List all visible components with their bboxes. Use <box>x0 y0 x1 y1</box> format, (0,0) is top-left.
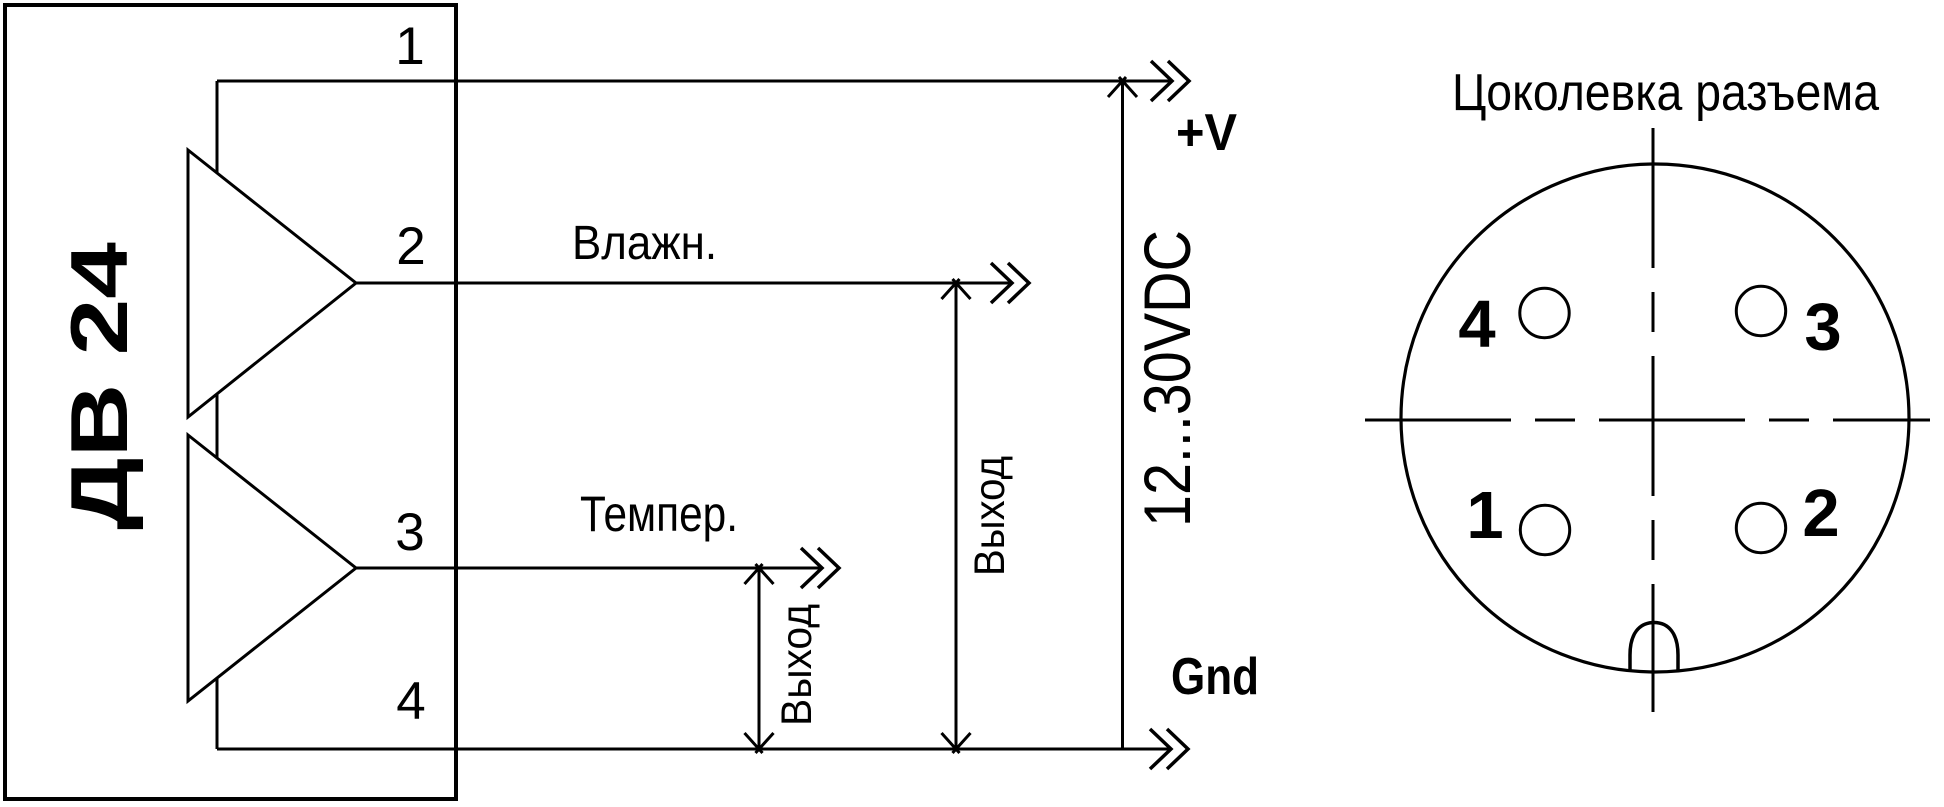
svg-text:Цоколевка разъема: Цоколевка разъема <box>1452 64 1879 122</box>
svg-text:3: 3 <box>395 503 424 562</box>
svg-text:12...30VDC: 12...30VDC <box>1130 230 1204 527</box>
svg-text:Влажн.: Влажн. <box>572 217 717 270</box>
svg-text:1: 1 <box>395 17 424 76</box>
svg-text:Gnd: Gnd <box>1171 648 1259 706</box>
svg-text:+V: +V <box>1176 104 1237 162</box>
svg-text:Выход: Выход <box>966 456 1014 576</box>
svg-text:1: 1 <box>1466 478 1503 553</box>
svg-text:2: 2 <box>396 217 425 276</box>
svg-text:4: 4 <box>1458 287 1495 362</box>
svg-text:3: 3 <box>1804 290 1841 365</box>
svg-text:ДВ 24: ДВ 24 <box>55 242 145 530</box>
svg-text:2: 2 <box>1802 476 1839 551</box>
svg-text:Темпер.: Темпер. <box>580 486 738 542</box>
svg-text:Выход: Выход <box>773 604 821 726</box>
svg-text:4: 4 <box>396 672 425 731</box>
